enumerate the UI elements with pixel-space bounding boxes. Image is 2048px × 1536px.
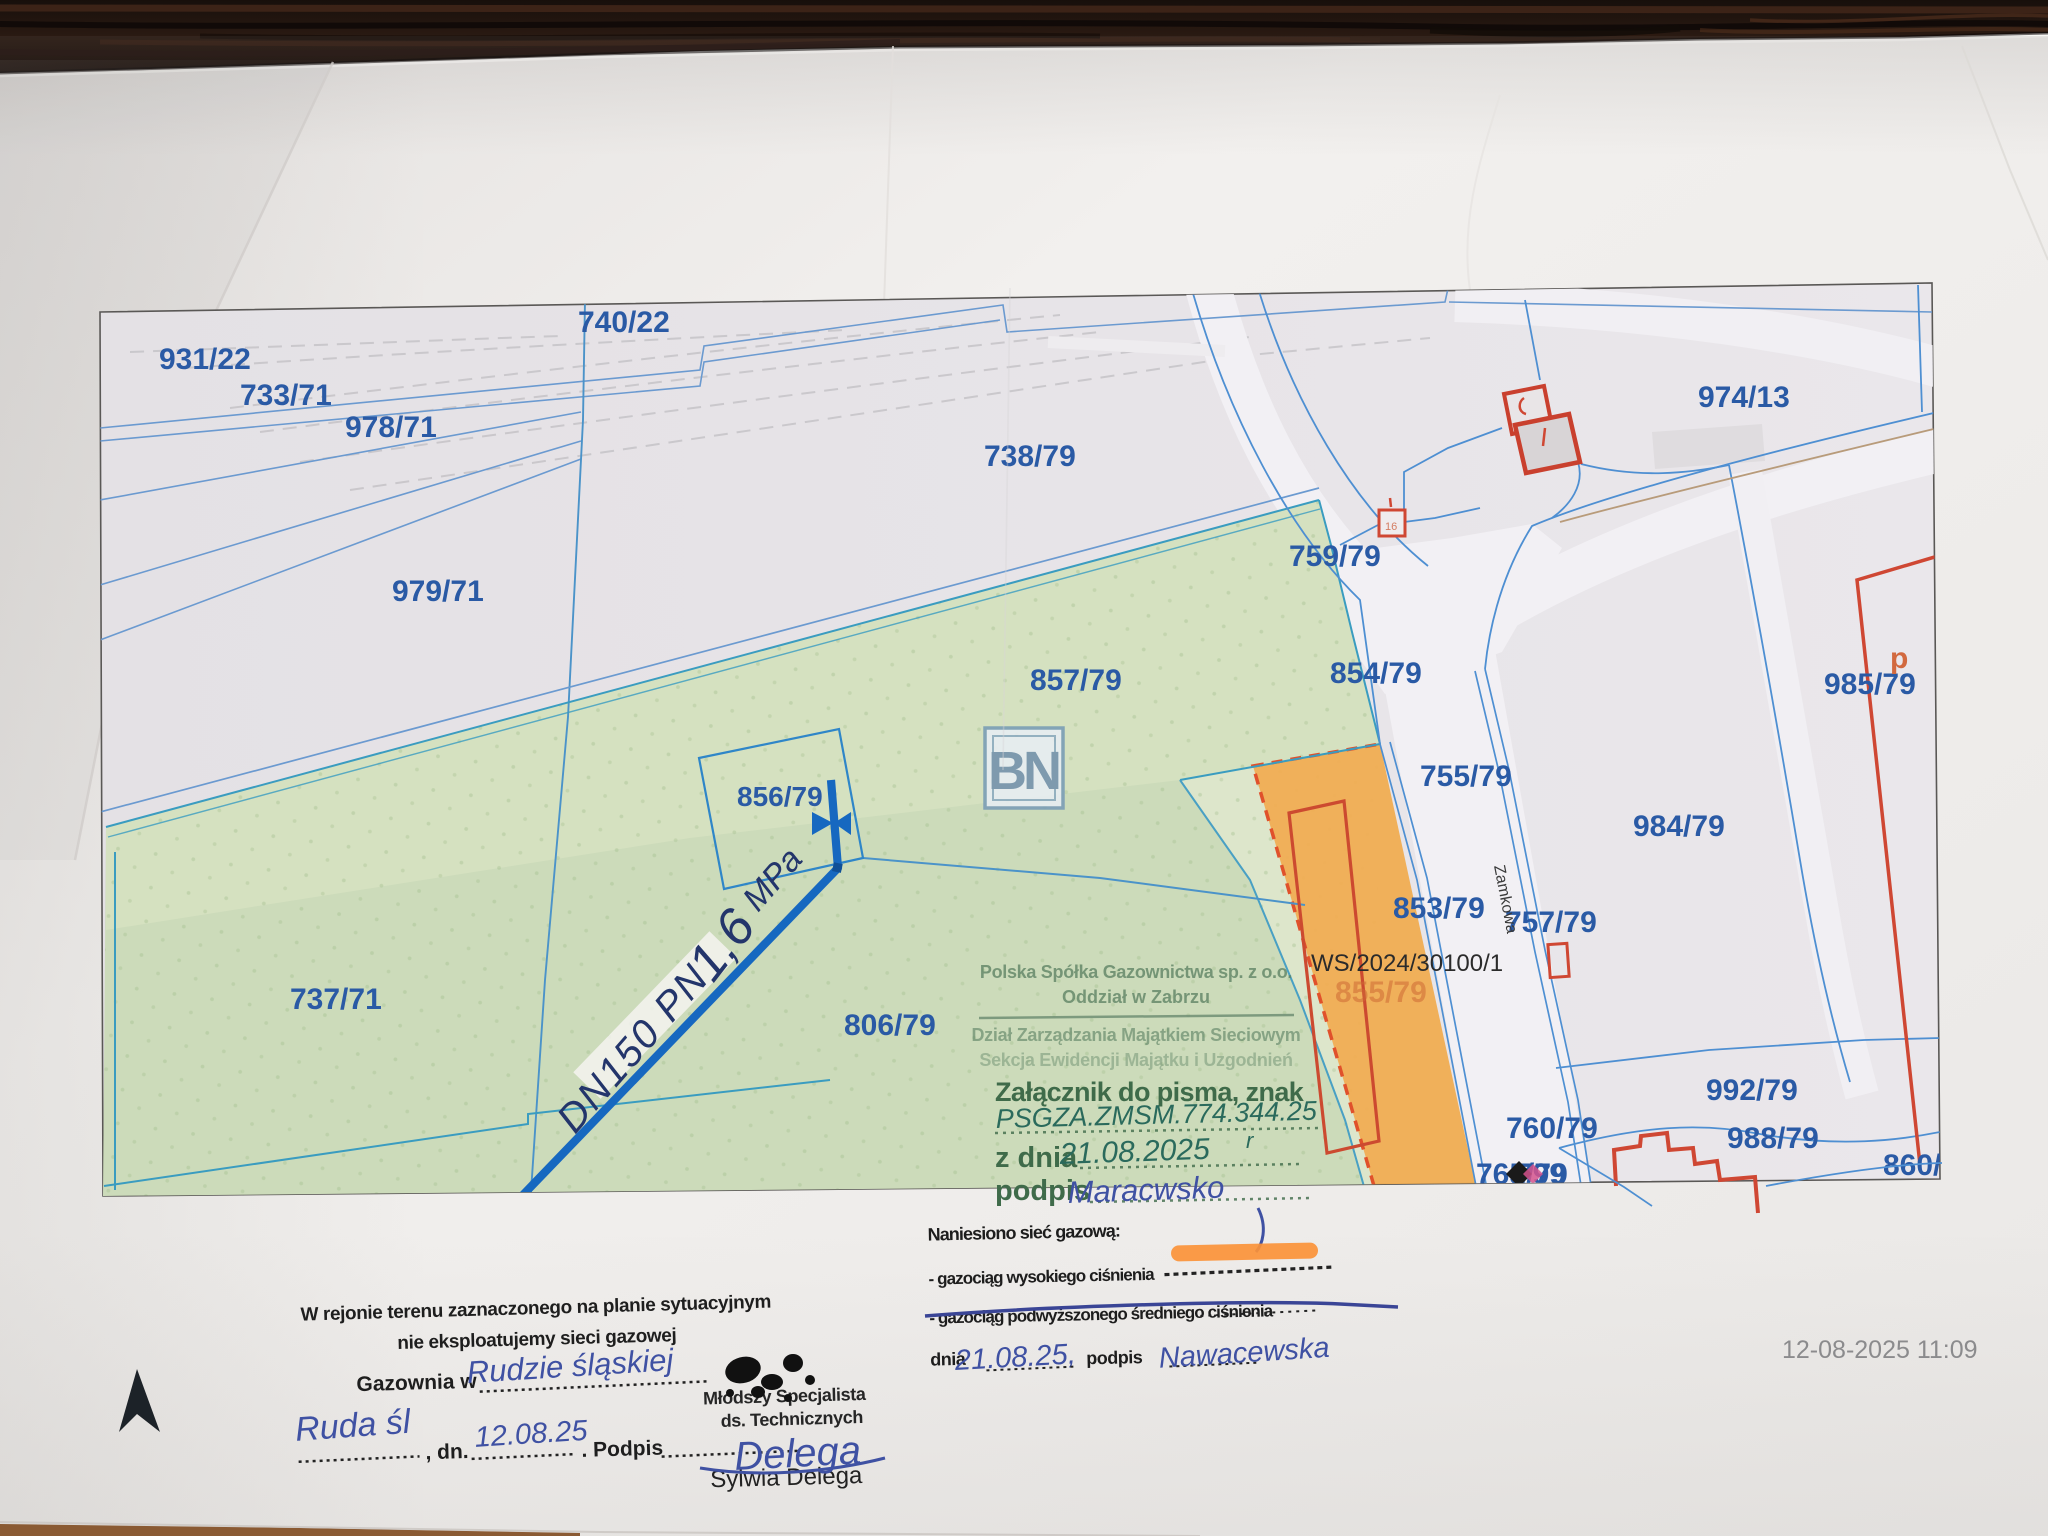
svg-text:Sekcja Ewidencji Majątku i Uzg: Sekcja Ewidencji Majątku i Uzgodnień [979, 1050, 1292, 1070]
svg-text:. Podpis: . Podpis [581, 1437, 663, 1462]
svg-text:p: p [1890, 642, 1908, 675]
svg-text:755/79: 755/79 [1420, 760, 1512, 793]
svg-text:854/79: 854/79 [1330, 657, 1422, 690]
svg-text:855/79: 855/79 [1335, 976, 1427, 1009]
svg-text:806/79: 806/79 [844, 1009, 936, 1042]
svg-text:12-08-2025 11:09: 12-08-2025 11:09 [1782, 1336, 1978, 1364]
svg-text:979/71: 979/71 [392, 575, 484, 608]
svg-text:738/79: 738/79 [984, 440, 1076, 473]
svg-text:WS/2024/30100/1: WS/2024/30100/1 [1311, 950, 1503, 977]
svg-text:Naniesiono sieć gazową:: Naniesiono sieć gazową: [927, 1221, 1120, 1245]
svg-text:860/: 860/ [1883, 1149, 1942, 1182]
svg-text:Maracwsko: Maracwsko [1067, 1170, 1225, 1210]
svg-text:21.08.2025: 21.08.2025 [1058, 1133, 1211, 1171]
svg-text:857/79: 857/79 [1030, 664, 1122, 697]
svg-text:podpis: podpis [1086, 1347, 1143, 1368]
svg-text:Oddział w Zabrzu: Oddział w Zabrzu [1062, 987, 1210, 1007]
svg-text:853/79: 853/79 [1393, 892, 1485, 925]
svg-text:856/79: 856/79 [737, 781, 823, 812]
svg-text:984/79: 984/79 [1633, 810, 1725, 843]
svg-text:737/71: 737/71 [290, 983, 382, 1016]
svg-text:978/71: 978/71 [345, 411, 437, 444]
svg-text:Gazownia w: Gazownia w [356, 1370, 477, 1396]
svg-text:Polska Spółka Gazownictwa sp.: Polska Spółka Gazownictwa sp. z o.o. [980, 962, 1292, 982]
svg-text:ds. Technicznych: ds. Technicznych [720, 1407, 863, 1431]
svg-text:988/79: 988/79 [1727, 1122, 1819, 1155]
svg-text:740/22: 740/22 [578, 306, 670, 339]
svg-text:992/79: 992/79 [1706, 1074, 1798, 1107]
svg-text:760/79: 760/79 [1506, 1112, 1598, 1145]
svg-text:16: 16 [1385, 521, 1397, 533]
svg-text:759/79: 759/79 [1289, 540, 1381, 573]
svg-text:733/71: 733/71 [240, 379, 332, 412]
svg-text:Dział Zarządzania Majątkiem Si: Dział Zarządzania Majątkiem Sieciowym [971, 1025, 1300, 1045]
svg-text:974/13: 974/13 [1698, 381, 1790, 414]
svg-text:21.08.25,: 21.08.25, [953, 1338, 1077, 1377]
svg-text:931/22: 931/22 [159, 343, 251, 376]
svg-text:, dn.: , dn. [425, 1440, 469, 1464]
svg-text:BN: BN [988, 741, 1059, 801]
